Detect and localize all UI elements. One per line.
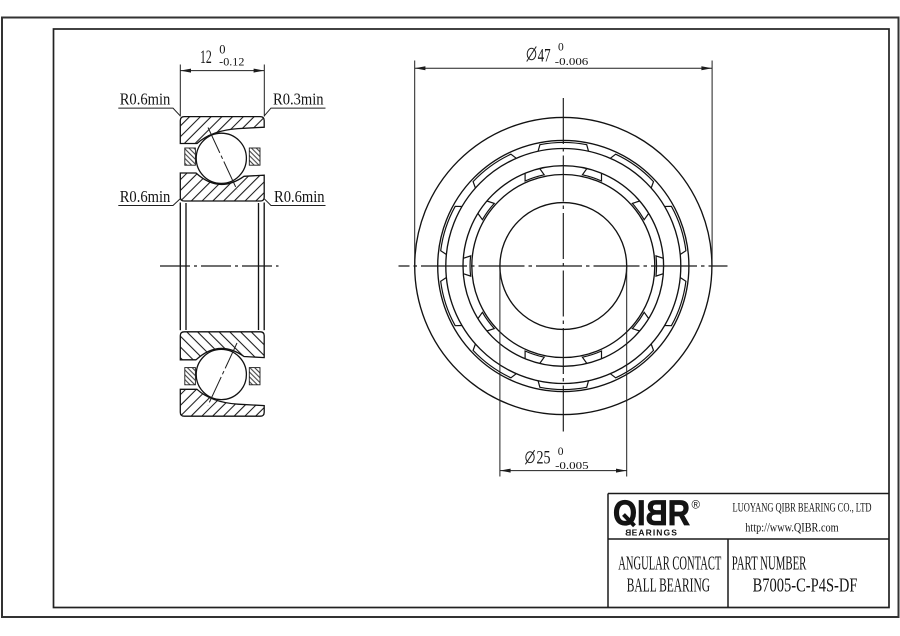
svg-text:PART NUMBER: PART NUMBER <box>732 554 807 575</box>
svg-text:R0.6min: R0.6min <box>120 187 171 206</box>
svg-text:12: 12 <box>200 47 212 68</box>
svg-text:®: ® <box>692 500 701 512</box>
svg-text:R0.3min: R0.3min <box>273 90 324 109</box>
svg-text:0: 0 <box>219 43 225 57</box>
svg-text:B: B <box>625 527 631 537</box>
svg-text:47: 47 <box>538 47 551 67</box>
svg-text:0: 0 <box>558 42 564 54</box>
svg-text:-0.005: -0.005 <box>555 460 589 472</box>
svg-text:EARINGS: EARINGS <box>632 527 678 537</box>
svg-text:-0.12: -0.12 <box>219 57 244 69</box>
svg-text:B7005-C-P4S-DF: B7005-C-P4S-DF <box>753 576 858 597</box>
svg-text:25: 25 <box>537 448 551 468</box>
svg-text:R0.6min: R0.6min <box>274 187 325 206</box>
svg-text:http://www.QIBR.com: http://www.QIBR.com <box>745 520 838 535</box>
svg-text:0: 0 <box>558 446 564 458</box>
svg-text:-0.006: -0.006 <box>555 56 589 68</box>
svg-text:LUOYANG QIBR BEARING CO., LTD: LUOYANG QIBR BEARING CO., LTD <box>733 499 872 514</box>
svg-text:R0.6min: R0.6min <box>120 90 171 109</box>
svg-text:ANGULAR CONTACT: ANGULAR CONTACT <box>618 554 721 575</box>
svg-text:BALL BEARING: BALL BEARING <box>627 576 710 597</box>
